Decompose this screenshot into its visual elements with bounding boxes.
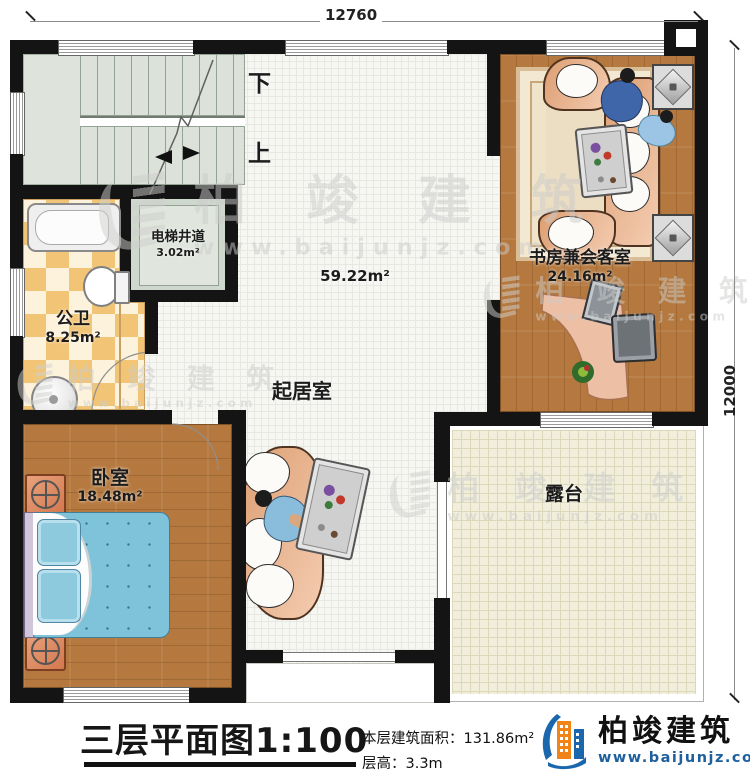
person-head — [255, 490, 272, 507]
title-underline — [84, 762, 356, 767]
cup-icon — [317, 523, 325, 531]
window — [546, 40, 666, 56]
brand-logo-icon — [536, 712, 590, 770]
wall-segment — [447, 40, 546, 54]
flower-icon — [323, 484, 336, 497]
window — [540, 412, 654, 428]
wall-segment — [10, 185, 131, 199]
window — [285, 40, 449, 56]
wall-segment — [10, 40, 23, 92]
desk-chair — [611, 313, 657, 363]
room-area-bathroom: 8.25m² — [23, 331, 123, 346]
wall-segment — [10, 410, 172, 424]
chimney-flue — [676, 29, 696, 47]
wall-segment — [487, 54, 500, 156]
flower-icon — [335, 495, 346, 506]
dimension-top-label: 12760 — [320, 6, 382, 24]
sliding-door — [437, 482, 447, 598]
room-name-bathroom: 公卫 — [23, 310, 123, 329]
wall-segment — [246, 650, 283, 663]
brand-url: www.baijunjz.com — [598, 750, 750, 766]
window — [58, 40, 195, 56]
wall-segment — [23, 688, 63, 703]
stair-up-label: 上 — [248, 142, 271, 167]
wall-segment — [189, 688, 246, 703]
sliding-door — [283, 652, 395, 662]
wall-segment — [395, 650, 435, 663]
stair-down-label: 下 — [248, 72, 271, 97]
room-name-terrace: 露台 — [504, 484, 624, 505]
room-area-study: 24.16m² — [495, 270, 665, 285]
wall-segment — [487, 300, 500, 412]
wall-segment — [10, 154, 23, 268]
room-name-living: 起居室 — [242, 380, 362, 402]
wall-segment — [193, 40, 285, 54]
window — [10, 92, 25, 156]
room-name-elevator: 电梯井道 — [131, 230, 225, 245]
dimension-right-label: 12000 — [721, 351, 739, 431]
room-name-bedroom: 卧室 — [50, 468, 170, 489]
cup-icon — [330, 530, 338, 538]
room-area-living: 59.22m² — [300, 268, 410, 285]
wall-segment — [652, 412, 708, 426]
brand-logo: 柏竣建筑 www.baijunjz.com — [536, 712, 750, 770]
wall-segment — [434, 412, 450, 482]
floor-area-line: 本层建筑面积：131.86m² — [362, 727, 534, 748]
floor-height-line: 层高：3.3m — [362, 752, 443, 773]
wall-segment — [145, 302, 158, 354]
window — [63, 687, 191, 703]
flower-icon — [324, 500, 333, 509]
wall-segment — [450, 412, 540, 426]
room-area-bedroom: 18.48m² — [50, 490, 170, 505]
wall-segment — [10, 336, 23, 703]
wall-segment — [434, 598, 450, 703]
floor-plan-canvas: 柏竣建筑 www.baijunjz.com 柏竣建筑 www.baijunjz.… — [0, 0, 750, 776]
wall-segment — [232, 410, 246, 703]
room-name-study: 书房兼会客室 — [495, 249, 665, 268]
brand-name: 柏竣建筑 — [598, 714, 734, 749]
wall-segment — [695, 54, 708, 426]
plan-title: 三层平面图1:100 — [80, 713, 368, 762]
room-area-elevator: 3.02m² — [131, 247, 225, 259]
